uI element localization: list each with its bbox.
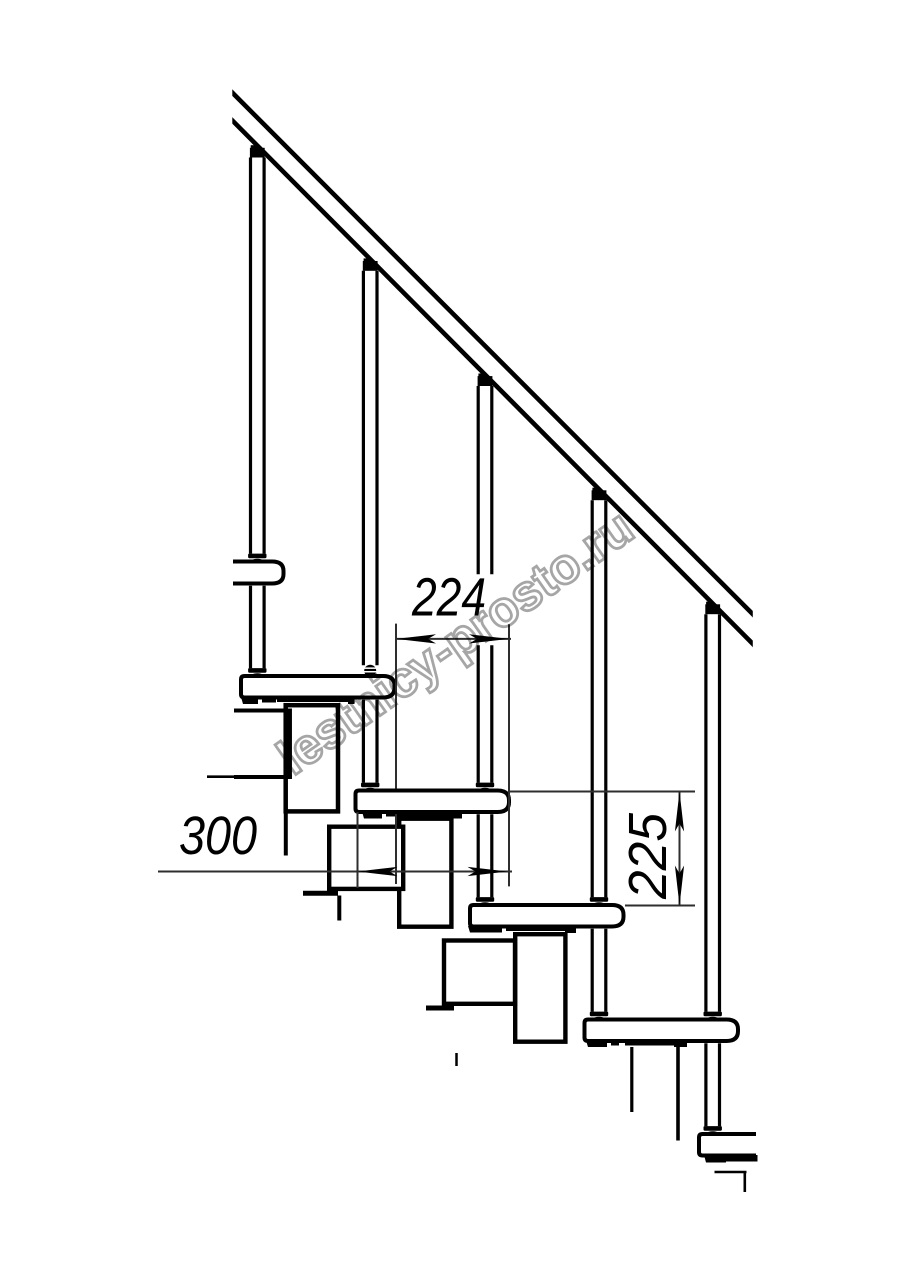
svg-text:300: 300: [179, 806, 257, 866]
svg-text:225: 225: [618, 812, 678, 900]
